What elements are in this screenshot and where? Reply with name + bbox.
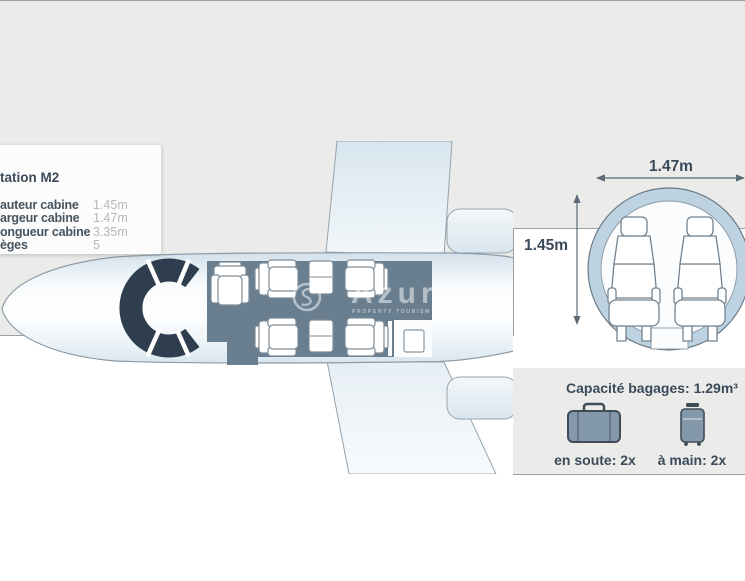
width-arrow [596,174,745,181]
spec-value: 1.45m [93,199,128,212]
spec-label: auteur cabine [0,198,79,212]
cabin-height-label: 1.45m [524,237,568,254]
watermark-text: Azur [351,277,438,310]
suitcase-icon [560,400,630,448]
spec-label: argeur cabine [0,211,79,225]
club-seat [345,318,388,356]
carry-on-icon [678,400,708,448]
baggage-title: Capacité bagages: 1.29m³ [566,380,738,396]
spec-label: èges [0,238,28,252]
spec-row: auteur cabine 1.45m [0,199,161,212]
watermark-tagline: PROPERTY TOURISM YACHTING [352,309,473,315]
spec-label: ongueur cabine [0,225,90,239]
hold-baggage-label: en soute: 2x [545,452,645,468]
aircraft-infographic: Azur PROPERTY TOURISM YACHTING tation M2… [0,0,745,581]
wing-top [326,141,452,256]
club-seat [255,318,298,356]
side-facing-seat [211,262,249,305]
spec-value: 3.35m [93,226,128,239]
cabin-width-label: 1.47m [649,158,693,175]
spec-row: argeur cabine 1.47m [0,212,161,225]
hand-baggage-label: à main: 2x [642,452,742,468]
height-arrow [573,194,580,325]
engine-nacelle-top [447,209,513,253]
aircraft-title: tation M2 [0,169,161,186]
engine-nacelle-bottom [447,377,513,419]
club-table [309,320,333,352]
cabin-specs-card: tation M2 auteur cabine 1.45m argeur cab… [0,145,161,254]
spec-row: èges 5 [0,239,161,252]
spec-row: ongueur cabine 3.35m [0,226,161,239]
club-seat [255,260,298,298]
lavatory [388,320,432,357]
spec-value: 5 [93,239,100,252]
fuselage-cross-section: 1.47m 1.45m [514,141,745,367]
spec-value: 1.47m [93,212,128,225]
